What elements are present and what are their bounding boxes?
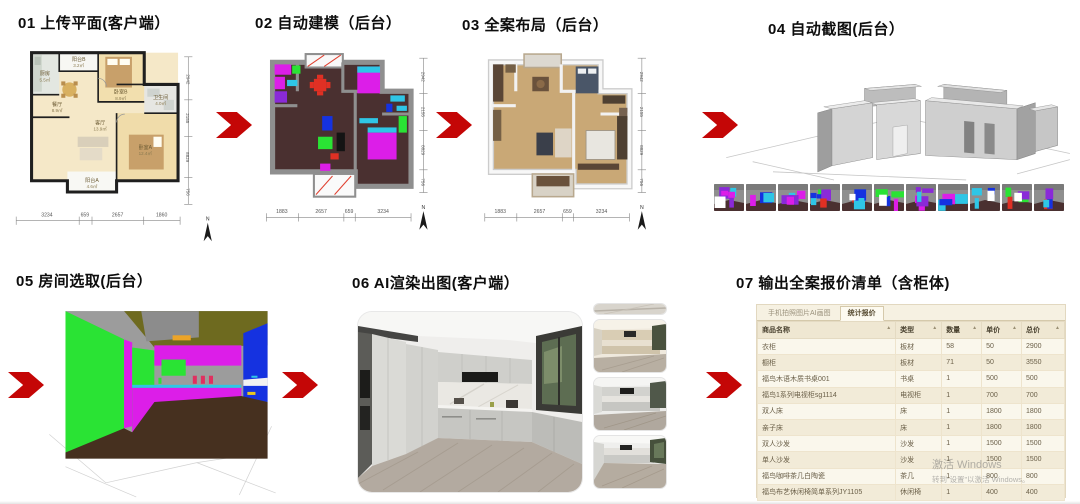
svg-text:3.2㎡: 3.2㎡ (73, 62, 84, 68)
shell-model-image (712, 60, 1078, 182)
render-thumbnails (594, 304, 666, 496)
table-cell: 700 (982, 387, 1022, 403)
render-thumbnail[interactable] (594, 320, 666, 372)
svg-text:N: N (422, 205, 426, 211)
segment-screenshot-thumb[interactable] (874, 184, 904, 211)
table-cell: 双人床 (758, 403, 896, 419)
dim-label: 2657 (112, 213, 124, 219)
sort-icon[interactable]: ▲ (1055, 325, 1060, 332)
table-cell: 单人沙发 (758, 452, 896, 468)
step-title-5: 05 房间选取(后台） (16, 270, 152, 291)
dim-label: 2942 (420, 72, 425, 83)
dim-label: 2155 (639, 107, 644, 118)
step-title-3: 03 全案布局（后台） (462, 14, 608, 35)
panel-room-selection (45, 305, 283, 499)
dim-label: 8829 (185, 152, 190, 163)
room-label: 阳台B (72, 56, 86, 63)
dim-label: 756 (639, 178, 644, 186)
floorplan-image: 厨房 5.5㎡ 阳台B 3.2㎡ 卧室B 8.9㎡ 卫生间 4.0㎡ 餐厅 8.… (8, 50, 218, 248)
dimension-line-bottom (485, 213, 630, 221)
step-title-4: 04 自动截图(后台） (768, 18, 904, 39)
flow-arrow-icon (436, 112, 472, 138)
table-cell: 1800 (1022, 419, 1065, 435)
segment-screenshot-thumb[interactable] (746, 184, 776, 211)
step-title-2: 02 自动建模（后台） (255, 12, 401, 33)
table-cell: 400 (982, 484, 1022, 500)
table-cell: 500 (1022, 371, 1065, 387)
svg-text:N: N (640, 205, 644, 211)
quote-header-row: 商品名称▲类型▲数量▲单价▲总价▲ (758, 322, 1065, 339)
table-cell: 1 (942, 484, 982, 500)
table-cell: 58 (942, 339, 982, 355)
screenshot-strip (714, 184, 1064, 211)
table-cell: 休闲椅 (896, 484, 942, 500)
table-cell: 福鸟木语木质书桌001 (758, 371, 896, 387)
room-label: 卧室B (114, 89, 128, 96)
flow-arrow-icon (282, 372, 318, 398)
dim-label: 1860 (156, 213, 168, 219)
table-row[interactable]: 单人沙发沙发115001500 (758, 452, 1065, 468)
dim-label: 659 (563, 209, 572, 215)
table-cell: 1 (942, 387, 982, 403)
compass-icon: N (419, 205, 427, 230)
segment-screenshot-thumb[interactable] (714, 184, 744, 211)
table-cell: 茶几 (896, 468, 942, 484)
table-cell: 床 (896, 419, 942, 435)
column-header[interactable]: 数量▲ (942, 322, 982, 339)
table-row[interactable]: 双人沙发沙发115001500 (758, 436, 1065, 452)
dim-label: 659 (81, 213, 90, 219)
table-row[interactable]: 衣柜板材58502900 (758, 339, 1065, 355)
table-row[interactable]: 福鸟1系列电视柜sg1114电视柜1700700 (758, 387, 1065, 403)
panel-full-layout: 1883 2657 659 3234 2942 2155 8829 756 N (478, 52, 660, 238)
segment-screenshot-thumb[interactable] (1034, 184, 1064, 211)
column-header[interactable]: 商品名称▲ (758, 322, 896, 339)
svg-text:8.9㎡: 8.9㎡ (115, 95, 126, 101)
room-label: 客厅 (95, 119, 105, 126)
dim-label: 3234 (41, 213, 53, 219)
table-cell: 1800 (982, 419, 1022, 435)
table-cell: 1 (942, 419, 982, 435)
svg-text:4.0㎡: 4.0㎡ (155, 100, 166, 106)
svg-text:13.9㎡: 13.9㎡ (94, 126, 108, 132)
table-row[interactable]: 福鸟木语木质书桌001书桌1500500 (758, 371, 1065, 387)
segment-screenshot-thumb[interactable] (970, 184, 1000, 211)
quote-table-body: 衣柜板材58502900橱柜板材71503550福鸟木语木质书桌001书桌150… (758, 339, 1065, 504)
svg-text:12.4㎡: 12.4㎡ (139, 150, 153, 156)
compass-icon: N (638, 205, 646, 230)
room-label: 卧室A (138, 144, 152, 151)
column-header[interactable]: 总价▲ (1022, 322, 1065, 339)
table-cell: 800 (1022, 468, 1065, 484)
panel-auto-model: 1883 2657 659 3234 2942 2155 8829 756 N (260, 52, 436, 238)
segment-screenshot-thumb[interactable] (842, 184, 872, 211)
sort-icon[interactable]: ▲ (1012, 325, 1017, 332)
table-cell: 1 (942, 436, 982, 452)
render-main-image (358, 312, 582, 492)
segment-screenshot-thumb[interactable] (1002, 184, 1032, 211)
table-cell: 板材 (896, 355, 942, 371)
table-cell: 沙发 (896, 436, 942, 452)
step-title-6: 06 AI渲染出图(客户端） (352, 272, 519, 293)
table-cell: 1 (942, 452, 982, 468)
quote-table: 商品名称▲类型▲数量▲单价▲总价▲ 衣柜板材58502900橱柜板材715035… (757, 321, 1065, 504)
sort-icon[interactable]: ▲ (972, 325, 977, 332)
panel-floorplan: 厨房 5.5㎡ 阳台B 3.2㎡ 卧室B 8.9㎡ 卫生间 4.0㎡ 餐厅 8.… (8, 50, 218, 248)
room-label: 餐厅 (52, 101, 62, 108)
flow-arrow-icon (216, 112, 252, 138)
panel-ai-render (358, 304, 668, 498)
table-cell: 沙发 (896, 452, 942, 468)
table-row[interactable]: 双人床床118001800 (758, 403, 1065, 419)
table-cell: 亲子床 (758, 419, 896, 435)
table-cell: 福鸟1系列电视柜sg1114 (758, 387, 896, 403)
table-cell: 1800 (1022, 403, 1065, 419)
table-row[interactable]: 橱柜板材71503550 (758, 355, 1065, 371)
panel-auto-screenshot (712, 60, 1078, 216)
table-cell: 1500 (982, 452, 1022, 468)
svg-text:5.5㎡: 5.5㎡ (39, 76, 50, 82)
table-cell: 1500 (982, 436, 1022, 452)
dim-label: 756 (185, 188, 190, 196)
panel-quote-table: 手机拍照图片AI画图 统计报价 商品名称▲类型▲数量▲单价▲总价▲ 衣柜板材58… (756, 304, 1066, 498)
dim-label: 2942 (185, 74, 190, 85)
dim-label: 8829 (639, 145, 644, 156)
table-cell: 50 (982, 339, 1022, 355)
dim-label: 8829 (420, 145, 425, 156)
table-cell: 福鸟咖啡茶几白陶瓷 (758, 468, 896, 484)
segmentation-room-image (45, 305, 283, 499)
layout-render-image: 1883 2657 659 3234 2942 2155 8829 756 N (478, 52, 660, 238)
segment-screenshot-thumb[interactable] (810, 184, 840, 211)
table-cell: 800 (982, 468, 1022, 484)
table-cell: 衣柜 (758, 339, 896, 355)
svg-text:4.6㎡: 4.6㎡ (87, 183, 98, 189)
render-thumbnail-partial[interactable] (594, 304, 666, 314)
dim-label: 2657 (534, 209, 546, 215)
sort-icon[interactable]: ▲ (932, 325, 937, 332)
table-cell: 福鸟布艺休闲椅简单系列JY1105 (758, 484, 896, 500)
column-header[interactable]: 类型▲ (896, 322, 942, 339)
svg-text:8.9㎡: 8.9㎡ (52, 107, 63, 113)
dim-label: 1883 (495, 209, 507, 215)
table-cell: 1500 (1022, 452, 1065, 468)
room-label: 卫生间 (153, 94, 168, 101)
segmentation-plan-image: 1883 2657 659 3234 2942 2155 8829 756 N (260, 52, 436, 238)
table-cell: 1 (942, 403, 982, 419)
room-label: 阳台A (85, 177, 99, 184)
table-cell: 橱柜 (758, 355, 896, 371)
table-cell: 板材 (896, 339, 942, 355)
quote-tabbar: 手机拍照图片AI画图 统计报价 (757, 305, 1065, 321)
dim-label: 1883 (276, 209, 288, 215)
render-thumbnail[interactable] (594, 378, 666, 430)
room-label: 厨房 (40, 70, 50, 77)
table-cell: 500 (982, 371, 1022, 387)
sort-icon[interactable]: ▲ (886, 325, 891, 332)
segment-screenshot-thumb[interactable] (906, 184, 936, 211)
table-cell: 书桌 (896, 371, 942, 387)
table-row[interactable]: 福鸟布艺休闲椅简单系列JY1105休闲椅1400400 (758, 484, 1065, 500)
step-title-7: 07 输出全案报价清单（含柜体) (736, 272, 950, 293)
flow-arrow-icon (706, 372, 742, 398)
table-row[interactable]: 亲子床床118001800 (758, 419, 1065, 435)
table-cell: 3550 (1022, 355, 1065, 371)
table-row[interactable]: 福鸟咖啡茶几白陶瓷茶几1800800 (758, 468, 1065, 484)
table-cell: 电视柜 (896, 387, 942, 403)
column-header[interactable]: 单价▲ (982, 322, 1022, 339)
dimension-line-bottom (266, 213, 411, 221)
render-thumbnail[interactable] (594, 436, 666, 488)
table-cell: 71 (942, 355, 982, 371)
svg-text:N: N (206, 217, 210, 223)
table-cell: 700 (1022, 387, 1065, 403)
dim-label: 2155 (420, 107, 425, 118)
dim-label: 659 (345, 209, 354, 215)
dim-label: 3234 (377, 209, 389, 215)
table-cell: 2900 (1022, 339, 1065, 355)
table-cell: 床 (896, 403, 942, 419)
table-cell: 双人沙发 (758, 436, 896, 452)
dim-label: 2657 (315, 209, 327, 215)
workflow-slide: 01 上传平面(客户端） 02 自动建模（后台） 03 全案布局（后台） 04 … (0, 0, 1080, 504)
dim-label: 2155 (185, 113, 190, 124)
table-cell: 1 (942, 371, 982, 387)
dim-label: 3234 (596, 209, 608, 215)
table-cell: 1500 (1022, 436, 1065, 452)
compass-icon: N (204, 217, 212, 241)
tab-ai-photo[interactable]: 手机拍照图片AI画图 (761, 307, 838, 320)
table-cell: 1800 (982, 403, 1022, 419)
table-cell: 50 (982, 355, 1022, 371)
flow-arrow-icon (8, 372, 44, 398)
segment-screenshot-thumb[interactable] (938, 184, 968, 211)
dim-label: 2942 (639, 72, 644, 83)
table-cell: 400 (1022, 484, 1065, 500)
tab-quote-stats[interactable]: 统计报价 (840, 306, 884, 321)
dim-label: 756 (420, 178, 425, 186)
segment-screenshot-thumb[interactable] (778, 184, 808, 211)
step-title-1: 01 上传平面(客户端） (18, 12, 170, 33)
table-cell: 1 (942, 468, 982, 484)
